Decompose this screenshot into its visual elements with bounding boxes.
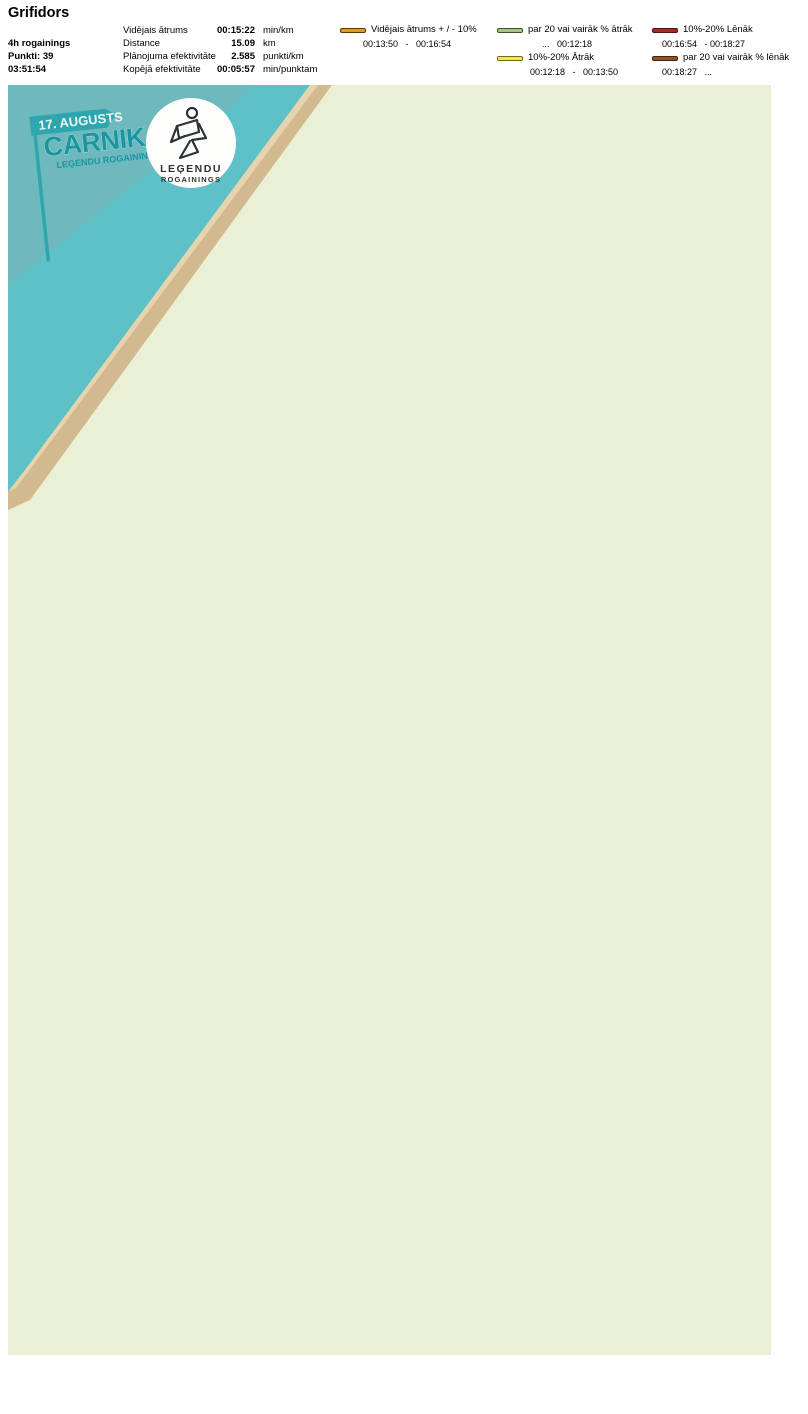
svg-text:ROGAININGS: ROGAININGS xyxy=(161,175,221,184)
svg-text:LEĢENDU: LEĢENDU xyxy=(160,163,222,175)
